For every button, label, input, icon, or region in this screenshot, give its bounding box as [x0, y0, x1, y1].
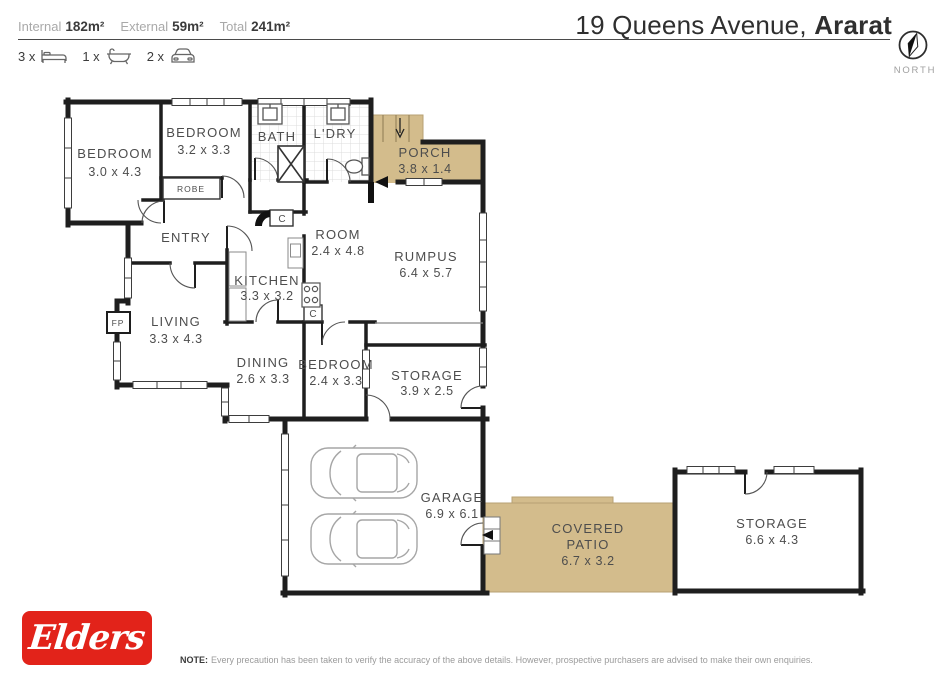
room-dims: 6.4 x 5.7	[399, 266, 452, 280]
room-dims: 3.2 x 3.3	[177, 143, 230, 157]
disclaimer-note: NOTE:Every precaution has been taken to …	[180, 655, 920, 665]
fireplace-label: FP	[112, 318, 125, 328]
room-label: COVERED	[552, 521, 625, 536]
room-dims: 6.6 x 4.3	[745, 533, 798, 547]
room-label: ENTRY	[161, 230, 211, 245]
shower	[278, 146, 304, 182]
room-label: PORCH	[399, 145, 452, 160]
cupboard-label: C	[278, 214, 285, 225]
patio-step	[482, 517, 500, 554]
room-label: RUMPUS	[394, 249, 458, 264]
room-dims: 2.4 x 4.8	[311, 244, 364, 258]
room-label: LIVING	[151, 314, 201, 329]
room-label: L'DRY	[314, 126, 357, 141]
floor-plan: BEDROOM 3.0 x 4.3 BEDROOM 3.2 x 3.3 BATH…	[0, 0, 948, 675]
room-label: BEDROOM	[298, 357, 374, 372]
elders-logo: Elders	[22, 611, 152, 665]
room-label: GARAGE	[421, 490, 484, 505]
room-dims: 3.0 x 4.3	[88, 165, 141, 179]
room-dims: 2.4 x 3.3	[309, 374, 362, 388]
room-dims: 3.9 x 2.5	[400, 384, 453, 398]
room-dims: 2.6 x 3.3	[236, 372, 289, 386]
room-label: KITCHEN	[234, 273, 299, 288]
car-1	[311, 445, 417, 501]
note-text: Every precaution has been taken to verif…	[211, 655, 813, 665]
room-label: BEDROOM	[77, 146, 153, 161]
room-dims: 3.8 x 1.4	[398, 162, 451, 176]
room-dims: 3.3 x 4.3	[149, 332, 202, 346]
brand-name: Elders	[27, 618, 147, 658]
room-dims: 3.3 x 3.2	[240, 289, 293, 303]
laundry-sink	[327, 104, 349, 124]
room-dims: 6.7 x 3.2	[561, 554, 614, 568]
robe-label: ROBE	[177, 184, 205, 194]
north-label: NORTH	[894, 65, 937, 76]
room-label: STORAGE	[736, 516, 808, 531]
room-label: ROOM	[315, 227, 360, 242]
outdoor-areas	[371, 115, 673, 592]
room-label: BATH	[258, 129, 297, 144]
room-label: BEDROOM	[166, 125, 242, 140]
toilet	[346, 158, 370, 175]
north-compass: NORTH	[894, 32, 937, 77]
car-2	[311, 511, 417, 567]
cupboard-label: C	[309, 309, 316, 320]
room-label: STORAGE	[391, 368, 463, 383]
room-label: PATIO	[566, 537, 609, 552]
stove	[302, 283, 320, 307]
room-label: DINING	[237, 355, 290, 370]
note-label: NOTE:	[180, 655, 208, 665]
bath-sink	[258, 104, 282, 124]
room-dims: 6.9 x 6.1	[425, 507, 478, 521]
